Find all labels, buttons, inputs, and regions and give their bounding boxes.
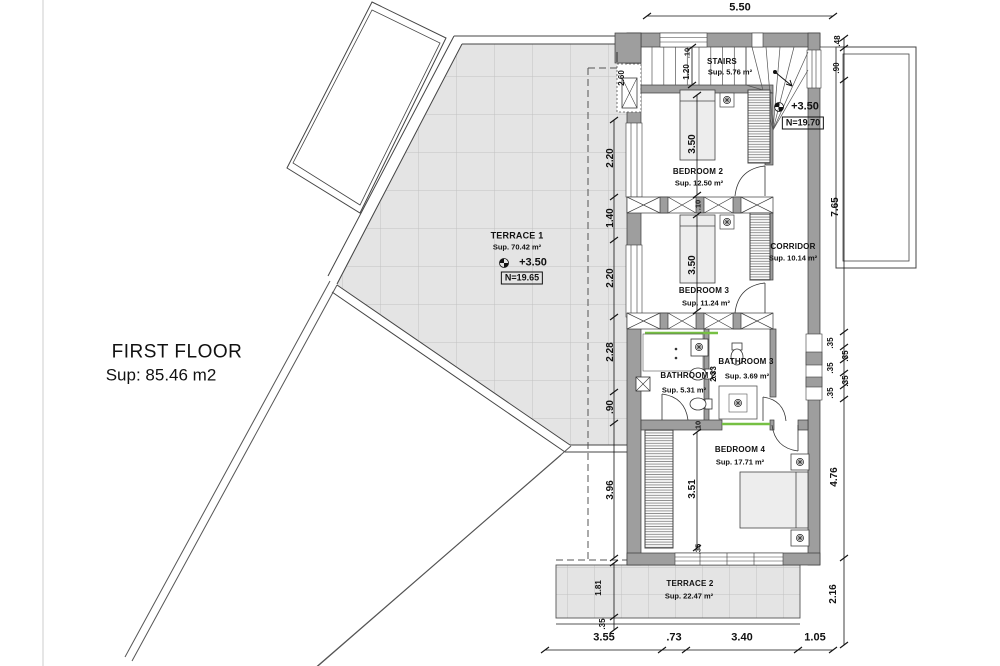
dim-right-5: .35	[827, 362, 835, 373]
dim-left-3: 2.20	[606, 268, 616, 287]
lamp-icon	[796, 458, 803, 465]
stairs-datum: N=19.70	[782, 117, 824, 130]
terrace1-level: +3.50	[519, 258, 547, 269]
dim-bottom-2: 3.40	[731, 633, 752, 644]
lamp-icon	[734, 399, 741, 406]
dim-bottom-1: .73	[666, 633, 681, 644]
floor-plan-drawing	[0, 0, 1000, 666]
dim-left-4: 2.28	[606, 342, 616, 361]
room-label-bedroom3: BEDROOM 3	[679, 287, 729, 295]
dim-int-5: 2.33	[710, 366, 718, 382]
room-label-terrace2: TERRACE 2	[666, 580, 713, 588]
dim-bottom-3: 1.05	[804, 633, 825, 644]
dim-int-3: .10	[694, 200, 702, 210]
room-area-bedroom2: Sup. 12.50 m²	[675, 179, 723, 187]
room-area-terrace2: Sup. 22.47 m²	[665, 592, 713, 600]
dim-right-2: 7.65	[831, 197, 841, 216]
lamp-icon	[723, 96, 730, 103]
dim-left-7: 1.81	[595, 580, 603, 596]
dim-right-0: .48	[834, 35, 842, 46]
stairs-level: +3.50	[791, 102, 819, 113]
dim-right-7: .35	[827, 387, 835, 398]
room-area-bathroom3: Sup. 3.69 m²	[725, 372, 769, 380]
dim-int-7: 3.51	[688, 479, 698, 498]
dim-int-8: .35	[694, 544, 702, 554]
room-area-bedroom4: Sup. 17.71 m²	[716, 458, 764, 466]
dim-right-1: .90	[833, 62, 841, 73]
dim-int-6: .10	[694, 421, 702, 431]
plan-title: FIRST FLOOR	[112, 343, 243, 362]
dim-left-8: .35	[599, 618, 607, 629]
dim-bottom-0: 3.55	[593, 633, 614, 644]
dim-right-6: .35	[842, 375, 850, 386]
room-label-bedroom4: BEDROOM 4	[715, 446, 765, 454]
dim-left-1: 2.20	[606, 148, 616, 167]
lamp-icon	[695, 343, 702, 350]
dim-int-0: .10	[683, 48, 691, 58]
lamp-icon	[723, 218, 730, 225]
bidet-icon	[690, 398, 712, 410]
room-area-terrace1: Sup. 70.42 m²	[493, 243, 541, 251]
room-label-terrace1: TERRACE 1	[491, 232, 544, 241]
room-area-corridor: Sup. 10.14 m²	[769, 254, 817, 262]
room-label-bedroom2: BEDROOM 2	[673, 168, 723, 176]
dim-right-4: .35	[842, 350, 850, 361]
dim-left-0: 2.60	[618, 70, 626, 86]
terrace1-datum: N=19.65	[501, 272, 543, 285]
room-area-stairs: Sup. 5.76 m²	[708, 68, 752, 76]
dim-int-4: 3.50	[688, 255, 698, 274]
room-label-corridor: CORRIDOR	[770, 243, 815, 251]
dim-int-1: 1.20	[683, 64, 691, 80]
dim-right-3: .35	[827, 337, 835, 348]
dim-left-6: 3.96	[606, 480, 616, 499]
roof-below-right	[820, 47, 916, 268]
dim-top-0: 5.50	[729, 3, 750, 14]
dim-right-9: 2.16	[829, 584, 839, 603]
room-area-bathroom2: Sup. 5.31 m²	[662, 386, 706, 394]
stairs-direction-arrow	[774, 71, 793, 87]
dim-right-8: 4.76	[830, 467, 840, 486]
dim-left-5: .90	[606, 400, 616, 414]
level-mark-icon	[775, 103, 784, 112]
plan-title-area: Sup: 85.46 m2	[106, 367, 217, 384]
dim-int-2: 3.50	[688, 134, 698, 153]
level-mark-icon	[500, 259, 509, 268]
lintel-band-2	[627, 313, 773, 329]
floor-plan-page: FIRST FLOOR Sup: 85.46 m2 STAIRS Sup. 5.…	[0, 0, 1000, 666]
dim-left-2: 1.40	[606, 208, 616, 227]
room-label-stairs: STAIRS	[707, 58, 737, 66]
room-label-bathroom2: BATHROOM 2	[660, 372, 715, 380]
room-area-bedroom3: Sup. 11.24 m²	[682, 299, 730, 307]
lamp-icon	[796, 534, 803, 541]
room-label-bathroom3: BATHROOM 3	[718, 358, 773, 366]
